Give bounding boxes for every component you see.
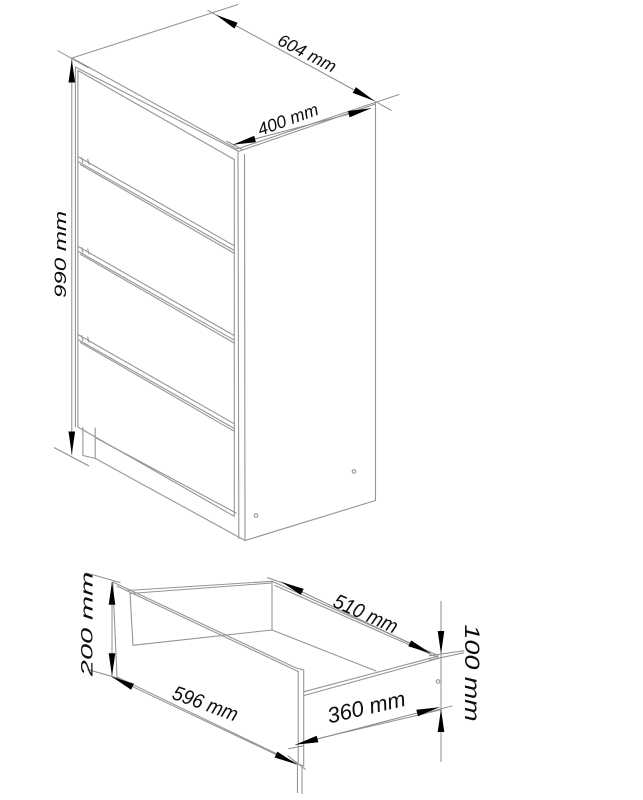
svg-text:990 mm: 990 mm <box>51 211 70 298</box>
svg-text:400 mm: 400 mm <box>255 99 321 139</box>
svg-text:360 mm: 360 mm <box>325 686 408 728</box>
svg-text:200 mm: 200 mm <box>78 572 96 677</box>
svg-text:604 mm: 604 mm <box>275 30 340 77</box>
svg-text:510 mm: 510 mm <box>330 590 402 639</box>
svg-text:100 mm: 100 mm <box>460 624 484 721</box>
